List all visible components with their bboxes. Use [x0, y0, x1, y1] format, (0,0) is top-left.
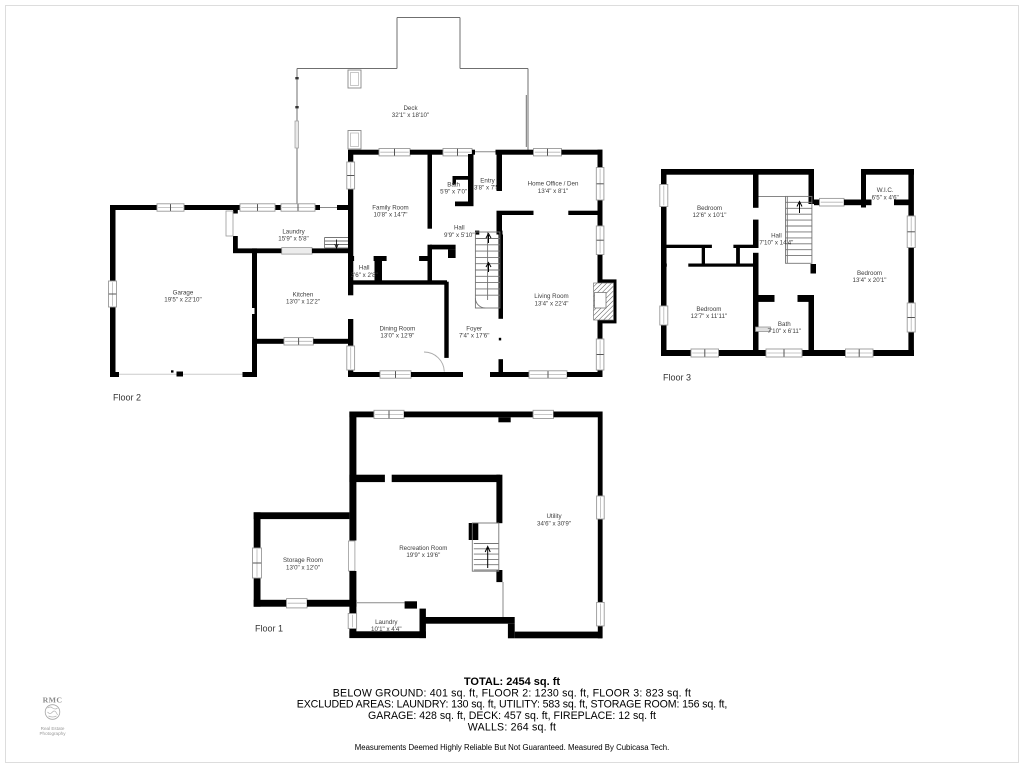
- svg-text:BELOW GROUND: 401 sq. ft, FLOO: BELOW GROUND: 401 sq. ft, FLOOR 2: 1230 …: [333, 687, 691, 699]
- svg-text:Kitchen: Kitchen: [293, 291, 314, 298]
- svg-text:13'4" x 8'1": 13'4" x 8'1": [538, 188, 569, 195]
- svg-text:GARAGE: 428 sq. ft, DECK: 457: GARAGE: 428 sq. ft, DECK: 457 sq. ft, FI…: [368, 710, 656, 722]
- svg-text:Utility: Utility: [546, 513, 562, 520]
- svg-text:Laundry: Laundry: [375, 619, 398, 626]
- svg-text:Hall: Hall: [454, 225, 465, 232]
- svg-text:Laundry: Laundry: [282, 229, 305, 236]
- svg-text:Floor 3: Floor 3: [663, 373, 691, 383]
- svg-text:34'6" x 30'9": 34'6" x 30'9": [537, 520, 571, 527]
- svg-text:Bedroom: Bedroom: [857, 270, 882, 277]
- svg-text:13'0" x 12'0": 13'0" x 12'0": [286, 564, 320, 571]
- svg-text:7'4" x 17'6": 7'4" x 17'6": [459, 333, 490, 340]
- svg-text:Bath: Bath: [778, 321, 791, 328]
- svg-text:Hall: Hall: [771, 232, 782, 239]
- svg-text:15'9" x 5'8": 15'9" x 5'8": [278, 236, 309, 243]
- svg-text:W.I.C.: W.I.C.: [877, 187, 894, 194]
- svg-text:13'0" x 12'2": 13'0" x 12'2": [286, 299, 320, 306]
- svg-text:TOTAL: 2454 sq. ft: TOTAL: 2454 sq. ft: [464, 676, 561, 688]
- svg-text:Floor 2: Floor 2: [113, 392, 141, 402]
- svg-text:19'5" x 22'10": 19'5" x 22'10": [164, 297, 201, 304]
- svg-text:Measurements Deemed Highly Rel: Measurements Deemed Highly Reliable But …: [355, 743, 670, 752]
- svg-text:9'9" x 5'10": 9'9" x 5'10": [444, 232, 475, 239]
- svg-text:Home Office / Den: Home Office / Den: [528, 181, 579, 188]
- svg-text:Hall: Hall: [359, 265, 370, 272]
- svg-text:Floor 1: Floor 1: [255, 624, 283, 634]
- svg-text:3'6" x 2'8": 3'6" x 2'8": [351, 272, 378, 279]
- svg-text:Foyer: Foyer: [466, 326, 482, 333]
- svg-text:12'7" x 11'11": 12'7" x 11'11": [691, 313, 727, 320]
- svg-text:32'1" x 18'10": 32'1" x 18'10": [392, 112, 429, 119]
- svg-text:13'4" x 22'4": 13'4" x 22'4": [535, 300, 569, 307]
- svg-text:12'6" x 10'1": 12'6" x 10'1": [693, 212, 727, 219]
- svg-text:RMC: RMC: [43, 696, 63, 705]
- svg-text:Living Room: Living Room: [534, 293, 568, 300]
- svg-text:WALLS: 264 sq. ft: WALLS: 264 sq. ft: [468, 721, 556, 733]
- svg-text:Storage Room: Storage Room: [283, 557, 323, 564]
- svg-text:13'4" x 20'1": 13'4" x 20'1": [853, 277, 887, 284]
- svg-text:5'9" x 7'0": 5'9" x 7'0": [440, 189, 467, 196]
- svg-text:6'5" x 4'6": 6'5" x 4'6": [872, 194, 899, 201]
- svg-text:Deck: Deck: [403, 105, 418, 112]
- svg-text:Family Room: Family Room: [372, 204, 408, 211]
- svg-text:13'0" x 12'9": 13'0" x 12'9": [380, 333, 414, 340]
- svg-text:EXCLUDED AREAS: LAUNDRY: 130 s: EXCLUDED AREAS: LAUNDRY: 130 sq. ft, UTI…: [297, 699, 727, 711]
- svg-text:Garage: Garage: [173, 290, 194, 297]
- svg-text:10'1" x 4'4": 10'1" x 4'4": [371, 626, 402, 633]
- svg-text:19'9" x 19'6": 19'9" x 19'6": [406, 552, 440, 559]
- svg-text:Dining Room: Dining Room: [380, 326, 416, 333]
- svg-text:Entry: Entry: [480, 178, 495, 185]
- svg-text:Bedroom: Bedroom: [696, 306, 721, 313]
- svg-text:Bath: Bath: [447, 181, 460, 188]
- svg-text:Photography: Photography: [39, 731, 66, 736]
- svg-text:Recreation Room: Recreation Room: [399, 545, 447, 552]
- svg-text:7'10" x 14'4": 7'10" x 14'4": [759, 240, 793, 247]
- svg-text:Bedroom: Bedroom: [697, 205, 722, 212]
- svg-text:7'10" x 6'11": 7'10" x 6'11": [768, 328, 801, 335]
- svg-text:10'8" x 14'7": 10'8" x 14'7": [374, 212, 408, 219]
